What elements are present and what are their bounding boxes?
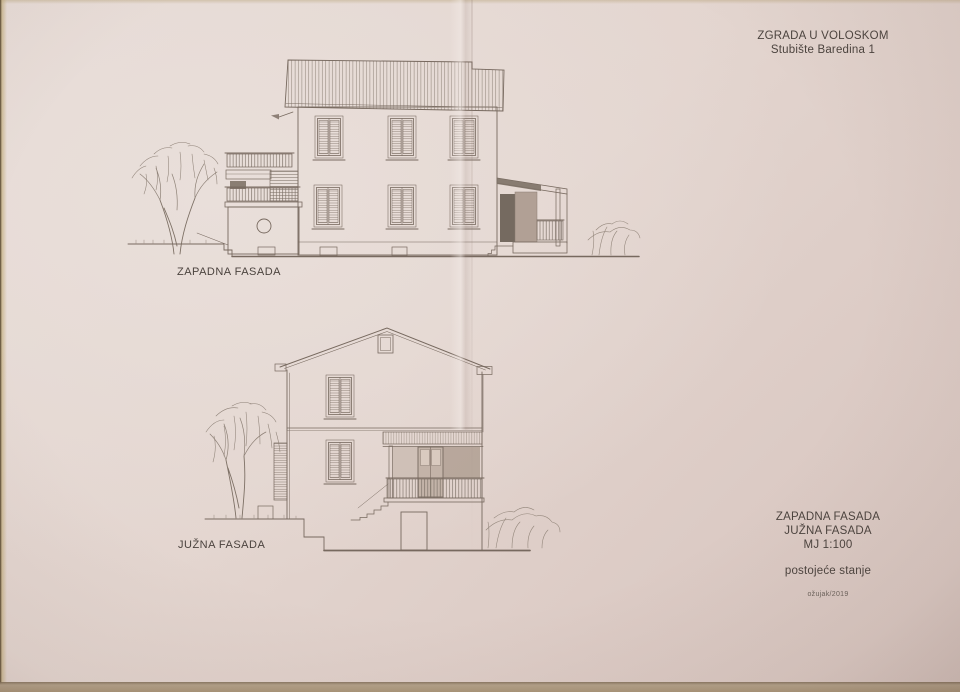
windows xyxy=(258,375,356,519)
info-line-status: postojeće stanje xyxy=(737,565,919,579)
ground-line xyxy=(128,240,639,257)
title-line-2: Stubište Baredina 1 xyxy=(730,44,916,58)
porch xyxy=(488,178,567,257)
attic-window xyxy=(378,335,393,353)
west-facade-label: ZAPADNA FASADA xyxy=(177,266,281,278)
veranda xyxy=(351,432,484,550)
info-line-elevation-1: ZAPADNA FASADA xyxy=(737,511,919,525)
title-block: ZGRADA U VOLOSKOM Stubište Baredina 1 xyxy=(730,30,916,57)
info-line-date: ožujak/2019 xyxy=(737,588,919,602)
info-line-scale: MJ 1:100 xyxy=(737,539,919,553)
info-line-elevation-2: JUŽNA FASADA xyxy=(737,525,919,539)
balcony xyxy=(197,153,302,254)
south-facade-label: JUŽNA FASADA xyxy=(178,539,265,551)
title-line-1: ZGRADA U VOLOSKOM xyxy=(730,30,916,44)
info-block: ZAPADNA FASADA JUŽNA FASADA MJ 1:100 pos… xyxy=(737,511,919,602)
paper-sheet: ZGRADA U VOLOSKOM Stubište Baredina 1 ZA… xyxy=(0,0,960,692)
tree-sketch-left xyxy=(206,402,280,518)
south-facade-drawing xyxy=(200,320,570,565)
flag-bracket xyxy=(271,112,293,120)
tree-sketch-left xyxy=(132,142,218,254)
table-edge xyxy=(0,682,960,692)
bush-sketch-right xyxy=(588,221,640,255)
windows xyxy=(312,116,480,229)
bush-sketch-right xyxy=(486,507,560,548)
west-facade-drawing xyxy=(120,50,650,265)
roof xyxy=(285,60,504,111)
roof-gable xyxy=(275,328,492,432)
